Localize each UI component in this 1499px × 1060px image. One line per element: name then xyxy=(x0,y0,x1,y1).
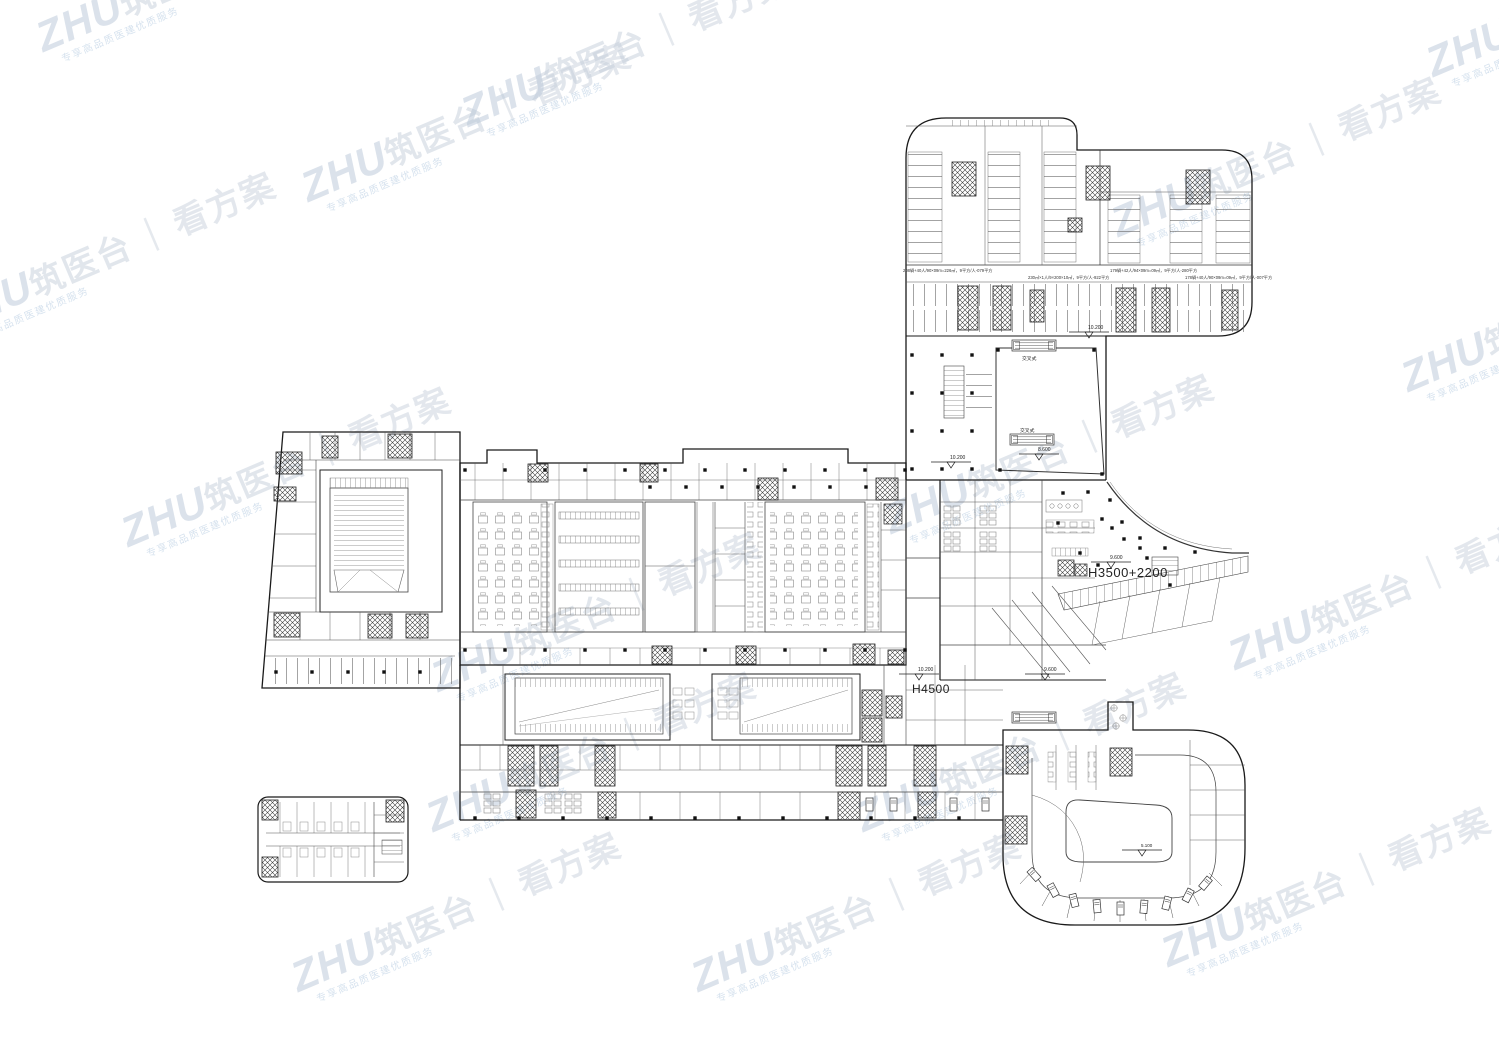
floor-height-label-main: H3500+2200 xyxy=(1088,565,1168,580)
central-block xyxy=(460,449,940,665)
ward-building xyxy=(1003,702,1245,925)
courtyard xyxy=(1066,800,1172,862)
lecture-hall-west xyxy=(505,674,694,740)
garage-note: 178辆+40人/90×09m=09㎡，9平方/人-007平方 xyxy=(1185,274,1272,281)
entrance-hall xyxy=(906,480,1249,680)
elevation-label: 5.100 xyxy=(1141,843,1153,848)
escalator-type-label: 交叉式 xyxy=(1020,427,1035,434)
garage-note: 179辆+42人/94×09m=09㎡，9平方/人-280平方 xyxy=(1110,267,1197,274)
garage-note: 230㎡×1人/9×200×10㎡，9平方/人-922平方 xyxy=(1028,274,1109,281)
dormitory-building xyxy=(258,797,408,882)
elevation-label: 10.200 xyxy=(950,455,966,461)
floor-plan-drawing: 208辆+40人/90×09m=226㎡，9平方/人-079平方 230㎡×1人… xyxy=(0,0,1499,1060)
structural-columns xyxy=(274,348,1196,819)
lower-band xyxy=(460,745,1003,820)
elevation-label: 10.200 xyxy=(1088,325,1104,331)
lecture-hall-east xyxy=(712,674,860,740)
parking-garage: 208辆+40人/90×09m=226㎡，9平方/人-079平方 230㎡×1人… xyxy=(903,118,1272,480)
left-wing xyxy=(262,432,460,688)
elevation-label: 8.600 xyxy=(1038,447,1051,453)
garage-note: 208辆+40人/90×09m=226㎡，9平方/人-079平方 xyxy=(903,267,993,274)
floor-plan-page: ZHU筑医台｜看方案 专享高品质医建优质服务 ZHU筑医台｜看方案 专享高品质医… xyxy=(0,0,1499,1060)
floor-height-label-hall: H4500 xyxy=(912,682,950,696)
elevation-label: 9.600 xyxy=(1044,667,1057,673)
lecture-hall-band xyxy=(460,665,1003,745)
elevation-label: 9.600 xyxy=(1110,555,1123,561)
escalator-type-label: 交叉式 xyxy=(1022,355,1037,362)
elevation-label: 10.200 xyxy=(918,667,934,673)
